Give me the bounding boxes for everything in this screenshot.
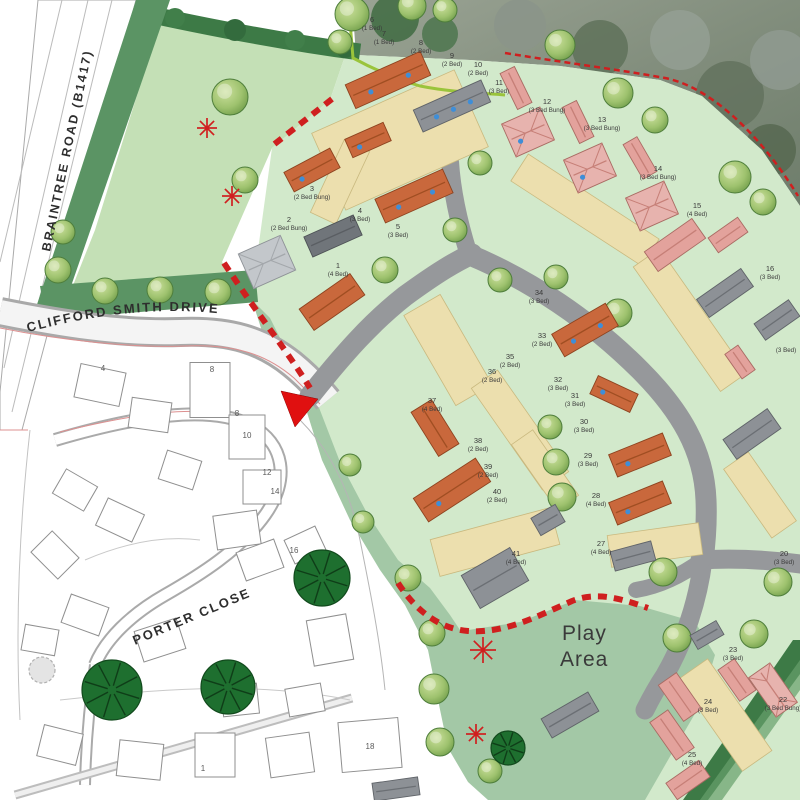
plot-label: (3 Bed) [776, 347, 796, 354]
tree [433, 0, 457, 22]
svg-text:(3 Bed Bung): (3 Bed Bung) [765, 705, 800, 712]
svg-text:25: 25 [688, 750, 696, 759]
svg-text:(1 Bed): (1 Bed) [374, 39, 394, 46]
existing-building-outline [21, 624, 59, 656]
tree [538, 415, 562, 439]
svg-text:(3 Bed): (3 Bed) [776, 347, 796, 354]
tree [232, 167, 258, 193]
svg-text:(2 Bed): (2 Bed) [411, 48, 431, 55]
svg-text:33: 33 [538, 331, 546, 340]
svg-text:20: 20 [780, 549, 788, 558]
svg-text:28: 28 [592, 491, 600, 500]
svg-text:5: 5 [396, 222, 400, 231]
svg-text:(3 Bed Bung): (3 Bed Bung) [584, 125, 620, 132]
existing-house-number: 16 [290, 546, 299, 555]
svg-text:(2 Bed): (2 Bed) [482, 377, 502, 384]
svg-text:(3 Bed): (3 Bed) [760, 274, 780, 281]
tree [740, 620, 768, 648]
existing-building-outline [285, 683, 325, 717]
svg-text:10: 10 [474, 60, 482, 69]
tree [212, 79, 248, 115]
existing-house-number: 4 [101, 364, 106, 373]
svg-text:24: 24 [704, 697, 712, 706]
tree [543, 449, 569, 475]
svg-text:(3 Bed): (3 Bed) [565, 401, 585, 408]
tree [426, 728, 454, 756]
svg-text:16: 16 [766, 264, 774, 273]
site-plan-page: BRAINTREE ROAD (B1417) CLIFFORD SMITH DR… [0, 0, 800, 800]
svg-text:(3 Bed Bung): (3 Bed Bung) [529, 107, 565, 114]
existing-house-number: 14 [271, 487, 280, 496]
tree [419, 620, 445, 646]
svg-text:35: 35 [506, 352, 514, 361]
tree [750, 189, 776, 215]
svg-text:8: 8 [419, 38, 423, 47]
tree [443, 218, 467, 242]
svg-text:(3 Bed): (3 Bed) [350, 216, 370, 223]
svg-text:(4 Bed): (4 Bed) [586, 501, 606, 508]
svg-text:3: 3 [310, 184, 314, 193]
tree [642, 107, 668, 133]
existing-building-outline [306, 614, 353, 666]
svg-text:34: 34 [535, 288, 543, 297]
svg-text:23: 23 [729, 645, 737, 654]
svg-text:(2 Bed): (2 Bed) [442, 61, 462, 68]
svg-text:(4 Bed): (4 Bed) [591, 549, 611, 556]
svg-text:4: 4 [358, 206, 362, 215]
play-area-label-line1: Play [562, 622, 607, 645]
svg-text:(2 Bed): (2 Bed) [478, 472, 498, 479]
existing-house-number: 8 [235, 409, 240, 418]
existing-house-number: 12 [263, 468, 272, 477]
tree [372, 257, 398, 283]
svg-text:(3 Bed): (3 Bed) [548, 385, 568, 392]
svg-text:(1 Bed): (1 Bed) [362, 25, 382, 32]
tree [352, 511, 374, 533]
svg-text:36: 36 [488, 367, 496, 376]
existing-tree [491, 731, 525, 765]
svg-text:(4 Bed): (4 Bed) [328, 271, 348, 278]
existing-building-outline [116, 740, 164, 780]
tree [545, 30, 575, 60]
existing-house-number: 18 [366, 742, 375, 751]
svg-text:(3 Bed): (3 Bed) [574, 427, 594, 434]
svg-text:(3 Bed): (3 Bed) [578, 461, 598, 468]
svg-text:37: 37 [428, 396, 436, 405]
svg-text:(3 Bed Bung): (3 Bed Bung) [640, 174, 676, 181]
existing-tree [82, 660, 142, 720]
svg-text:22: 22 [779, 695, 787, 704]
svg-text:39: 39 [484, 462, 492, 471]
site-plan-drawing: BRAINTREE ROAD (B1417) CLIFFORD SMITH DR… [0, 0, 800, 800]
svg-text:40: 40 [493, 487, 501, 496]
tree [663, 624, 691, 652]
existing-building-outline [265, 732, 314, 778]
svg-text:27: 27 [597, 539, 605, 548]
svg-text:(3 Bed): (3 Bed) [529, 298, 549, 305]
svg-text:(3 Bed): (3 Bed) [388, 232, 408, 239]
svg-text:(2 Bed): (2 Bed) [468, 446, 488, 453]
svg-text:7: 7 [382, 29, 386, 38]
tree [719, 161, 751, 193]
tree [339, 454, 361, 476]
tree [328, 30, 352, 54]
svg-text:6: 6 [370, 15, 374, 24]
svg-text:12: 12 [543, 97, 551, 106]
svg-text:14: 14 [654, 164, 662, 173]
svg-text:38: 38 [474, 436, 482, 445]
tree [764, 568, 792, 596]
tree [45, 257, 71, 283]
tree [544, 265, 568, 289]
tree [649, 558, 677, 586]
svg-text:2: 2 [287, 215, 291, 224]
svg-text:(2 Bed): (2 Bed) [487, 497, 507, 504]
svg-text:11: 11 [495, 78, 503, 87]
svg-text:(4 Bed): (4 Bed) [687, 211, 707, 218]
svg-text:1: 1 [336, 261, 340, 270]
existing-building-outline [213, 510, 261, 550]
svg-text:(2 Bed Bung): (2 Bed Bung) [294, 194, 330, 201]
svg-text:(4 Bed): (4 Bed) [682, 760, 702, 767]
svg-text:29: 29 [584, 451, 592, 460]
svg-text:(2 Bed): (2 Bed) [468, 70, 488, 77]
svg-text:(3 Bed): (3 Bed) [774, 559, 794, 566]
tree [488, 268, 512, 292]
existing-house-number: 8 [210, 365, 215, 374]
svg-text:32: 32 [554, 375, 562, 384]
play-area-label-line2: Area [560, 648, 608, 671]
removed-tree-star [466, 724, 486, 744]
svg-text:(3 Bed): (3 Bed) [489, 88, 509, 95]
svg-text:(3 Bed): (3 Bed) [723, 655, 743, 662]
removed-tree-star [222, 186, 242, 206]
existing-tree [294, 550, 350, 606]
existing-house-number: 10 [243, 431, 252, 440]
svg-text:31: 31 [571, 391, 579, 400]
svg-text:(2 Bed): (2 Bed) [532, 341, 552, 348]
removed-tree-star [197, 118, 217, 138]
svg-text:(4 Bed): (4 Bed) [422, 406, 442, 413]
svg-text:13: 13 [598, 115, 606, 124]
existing-house-number: 1 [201, 764, 206, 773]
tree [419, 674, 449, 704]
svg-text:30: 30 [580, 417, 588, 426]
existing-building-outline [128, 397, 172, 432]
tree [603, 78, 633, 108]
tree [92, 278, 118, 304]
svg-text:9: 9 [450, 51, 454, 60]
svg-text:(2 Bed Bung): (2 Bed Bung) [271, 225, 307, 232]
existing-tree [201, 660, 255, 714]
svg-text:(2 Bed): (2 Bed) [500, 362, 520, 369]
svg-text:15: 15 [693, 201, 701, 210]
removed-tree-star [470, 637, 496, 663]
svg-text:(3 Bed): (3 Bed) [698, 707, 718, 714]
svg-text:41: 41 [512, 549, 520, 558]
existing-tree-outline [29, 657, 55, 683]
svg-text:(4 Bed): (4 Bed) [506, 559, 526, 566]
tree [468, 151, 492, 175]
